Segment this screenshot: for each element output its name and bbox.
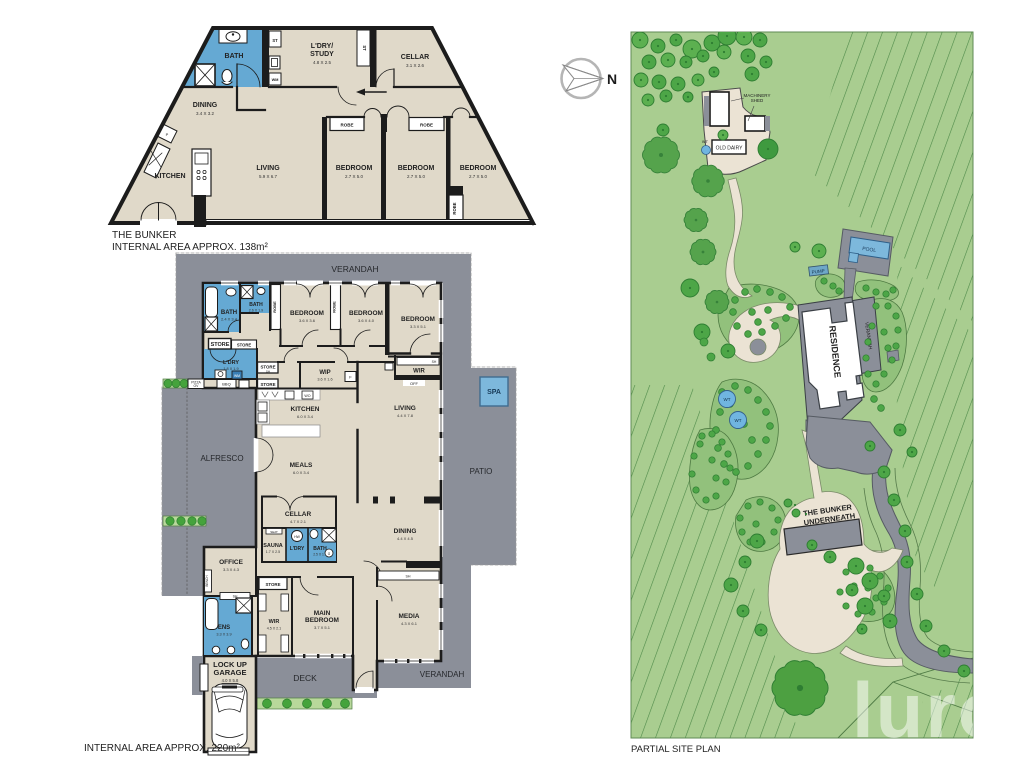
svg-text:WIR: WIR <box>413 369 425 375</box>
svg-text:ST: ST <box>362 45 367 51</box>
svg-text:STUDY: STUDY <box>310 51 334 58</box>
svg-text:BENCH: BENCH <box>205 575 209 587</box>
svg-text:WO: WO <box>304 394 310 398</box>
svg-text:KITCHEN: KITCHEN <box>291 406 320 413</box>
svg-text:BEDROOM: BEDROOM <box>401 316 435 323</box>
svg-text:2.7 X 5.0: 2.7 X 5.0 <box>407 174 426 179</box>
svg-text:WM: WM <box>272 78 279 82</box>
svg-text:OFF: OFF <box>410 381 419 386</box>
svg-text:ST: ST <box>272 38 278 43</box>
svg-text:3.6 X 3.6: 3.6 X 3.6 <box>299 318 316 323</box>
svg-text:CELLAR: CELLAR <box>401 54 429 61</box>
svg-text:BATH: BATH <box>225 53 244 60</box>
svg-text:4.5 X 2.1: 4.5 X 2.1 <box>267 627 281 631</box>
svg-text:4.0 X 5.8: 4.0 X 5.8 <box>222 678 239 683</box>
svg-text:DECK: DECK <box>293 673 317 683</box>
svg-text:STORE: STORE <box>260 382 275 387</box>
svg-text:HW: HW <box>294 535 300 539</box>
svg-text:BATH: BATH <box>221 310 237 316</box>
svg-text:4.4 X 7.8: 4.4 X 7.8 <box>397 413 414 418</box>
svg-text:SPA: SPA <box>487 389 501 396</box>
svg-text:SH: SH <box>266 370 270 374</box>
svg-text:OFFICE: OFFICE <box>219 559 243 566</box>
svg-text:ROBE: ROBE <box>340 123 353 128</box>
svg-text:ROBE: ROBE <box>272 301 277 313</box>
svg-text:SHED: SHED <box>751 98 764 103</box>
svg-text:3.3 X 3.9: 3.3 X 3.9 <box>216 633 231 637</box>
svg-text:3.4 X 3.2: 3.4 X 3.2 <box>196 111 215 116</box>
svg-text:MAIN: MAIN <box>314 610 331 617</box>
svg-text:SAUNA: SAUNA <box>263 543 283 549</box>
svg-text:DINING: DINING <box>193 102 218 109</box>
svg-text:L'DRY: L'DRY <box>290 546 305 552</box>
svg-text:GARAGE: GARAGE <box>214 668 247 677</box>
svg-text:BATH: BATH <box>249 302 263 308</box>
svg-text:CELLAR: CELLAR <box>285 511 312 518</box>
svg-text:BEDROOM: BEDROOM <box>290 310 324 317</box>
svg-text:ALFRESCO: ALFRESCO <box>200 454 243 463</box>
svg-text:2.4 X 3.4: 2.4 X 3.4 <box>221 317 238 322</box>
svg-text:3.6 X 1.6: 3.6 X 1.6 <box>317 378 332 382</box>
svg-text:SH: SH <box>406 575 411 579</box>
svg-text:3.6 X 4.0: 3.6 X 4.0 <box>358 318 375 323</box>
svg-text:VERANDAH: VERANDAH <box>331 264 378 274</box>
svg-text:PARTIAL SITE PLAN: PARTIAL SITE PLAN <box>631 744 721 755</box>
svg-text:WIR: WIR <box>269 619 280 625</box>
svg-text:SH: SH <box>432 360 437 364</box>
svg-text:L'DRY/: L'DRY/ <box>311 43 333 50</box>
svg-text:5.9 X 6.7: 5.9 X 6.7 <box>259 174 278 179</box>
svg-text:P: P <box>166 132 169 137</box>
svg-text:BEDROOM: BEDROOM <box>336 165 373 172</box>
svg-text:PATIO: PATIO <box>470 467 493 476</box>
svg-text:THE BUNKER: THE BUNKER <box>112 230 176 241</box>
svg-text:KITCHEN: KITCHEN <box>154 173 185 180</box>
svg-text:INTERNAL AREA APPROX. 220m²: INTERNAL AREA APPROX. 220m² <box>84 743 240 754</box>
svg-text:ROBE: ROBE <box>332 301 337 313</box>
svg-text:BEDROOM: BEDROOM <box>349 310 383 317</box>
svg-text:BBQ: BBQ <box>222 382 230 387</box>
svg-text:4.4 X 4.5: 4.4 X 4.5 <box>397 536 414 541</box>
svg-text:2.7 X 5.0: 2.7 X 5.0 <box>469 174 488 179</box>
svg-text:OLD DAIRY: OLD DAIRY <box>716 146 744 152</box>
svg-text:2.7 X 5.0: 2.7 X 5.0 <box>345 174 364 179</box>
svg-text:BEDROOM: BEDROOM <box>460 165 497 172</box>
svg-text:BEDROOM: BEDROOM <box>398 165 435 172</box>
svg-text:3.7 X 5.1: 3.7 X 5.1 <box>314 625 331 630</box>
svg-text:ROBE: ROBE <box>452 202 457 214</box>
svg-text:2.6 X 1.9: 2.6 X 1.9 <box>249 309 263 313</box>
svg-text:INTERNAL AREA APPROX. 138m²: INTERNAL AREA APPROX. 138m² <box>112 242 268 253</box>
svg-text:ENS: ENS <box>218 625 230 631</box>
svg-text:ROBE: ROBE <box>420 123 433 128</box>
svg-text:STORE: STORE <box>211 342 230 348</box>
svg-text:N: N <box>607 71 617 87</box>
svg-text:DINING: DINING <box>394 528 417 535</box>
svg-text:MEDIA: MEDIA <box>399 613 420 620</box>
svg-text:SEAT: SEAT <box>270 530 278 534</box>
svg-text:3.3 X 5.1: 3.3 X 5.1 <box>410 324 427 329</box>
svg-text:VERANDAH: VERANDAH <box>420 670 465 679</box>
svg-text:1.7 X 2.5: 1.7 X 2.5 <box>266 550 280 554</box>
svg-text:6.0 X 3.4: 6.0 X 3.4 <box>297 414 314 419</box>
svg-text:WT: WT <box>735 418 742 423</box>
svg-text:L'DRY: L'DRY <box>223 360 239 366</box>
svg-text:3.1 X 2.6: 3.1 X 2.6 <box>406 63 425 68</box>
svg-text:STORE: STORE <box>237 343 252 348</box>
svg-text:OV: OV <box>194 384 200 388</box>
svg-text:WM: WM <box>234 374 240 378</box>
svg-text:LIVING: LIVING <box>256 165 280 172</box>
svg-text:4.7 X 2.1: 4.7 X 2.1 <box>290 519 307 524</box>
svg-text:WT: WT <box>702 139 709 144</box>
svg-text:6.0 X 3.4: 6.0 X 3.4 <box>293 470 310 475</box>
svg-text:4.3 X 6.1: 4.3 X 6.1 <box>401 621 418 626</box>
svg-text:MEALS: MEALS <box>290 462 313 469</box>
svg-text:3.3 X 4.3: 3.3 X 4.3 <box>223 567 240 572</box>
svg-text:4.8 X 2.5: 4.8 X 2.5 <box>313 60 332 65</box>
svg-text:LIVING: LIVING <box>394 405 416 412</box>
svg-text:STORE: STORE <box>265 582 280 587</box>
svg-text:WIP: WIP <box>319 370 330 376</box>
svg-text:WT: WT <box>724 397 731 402</box>
svg-text:BEDROOM: BEDROOM <box>305 617 339 624</box>
